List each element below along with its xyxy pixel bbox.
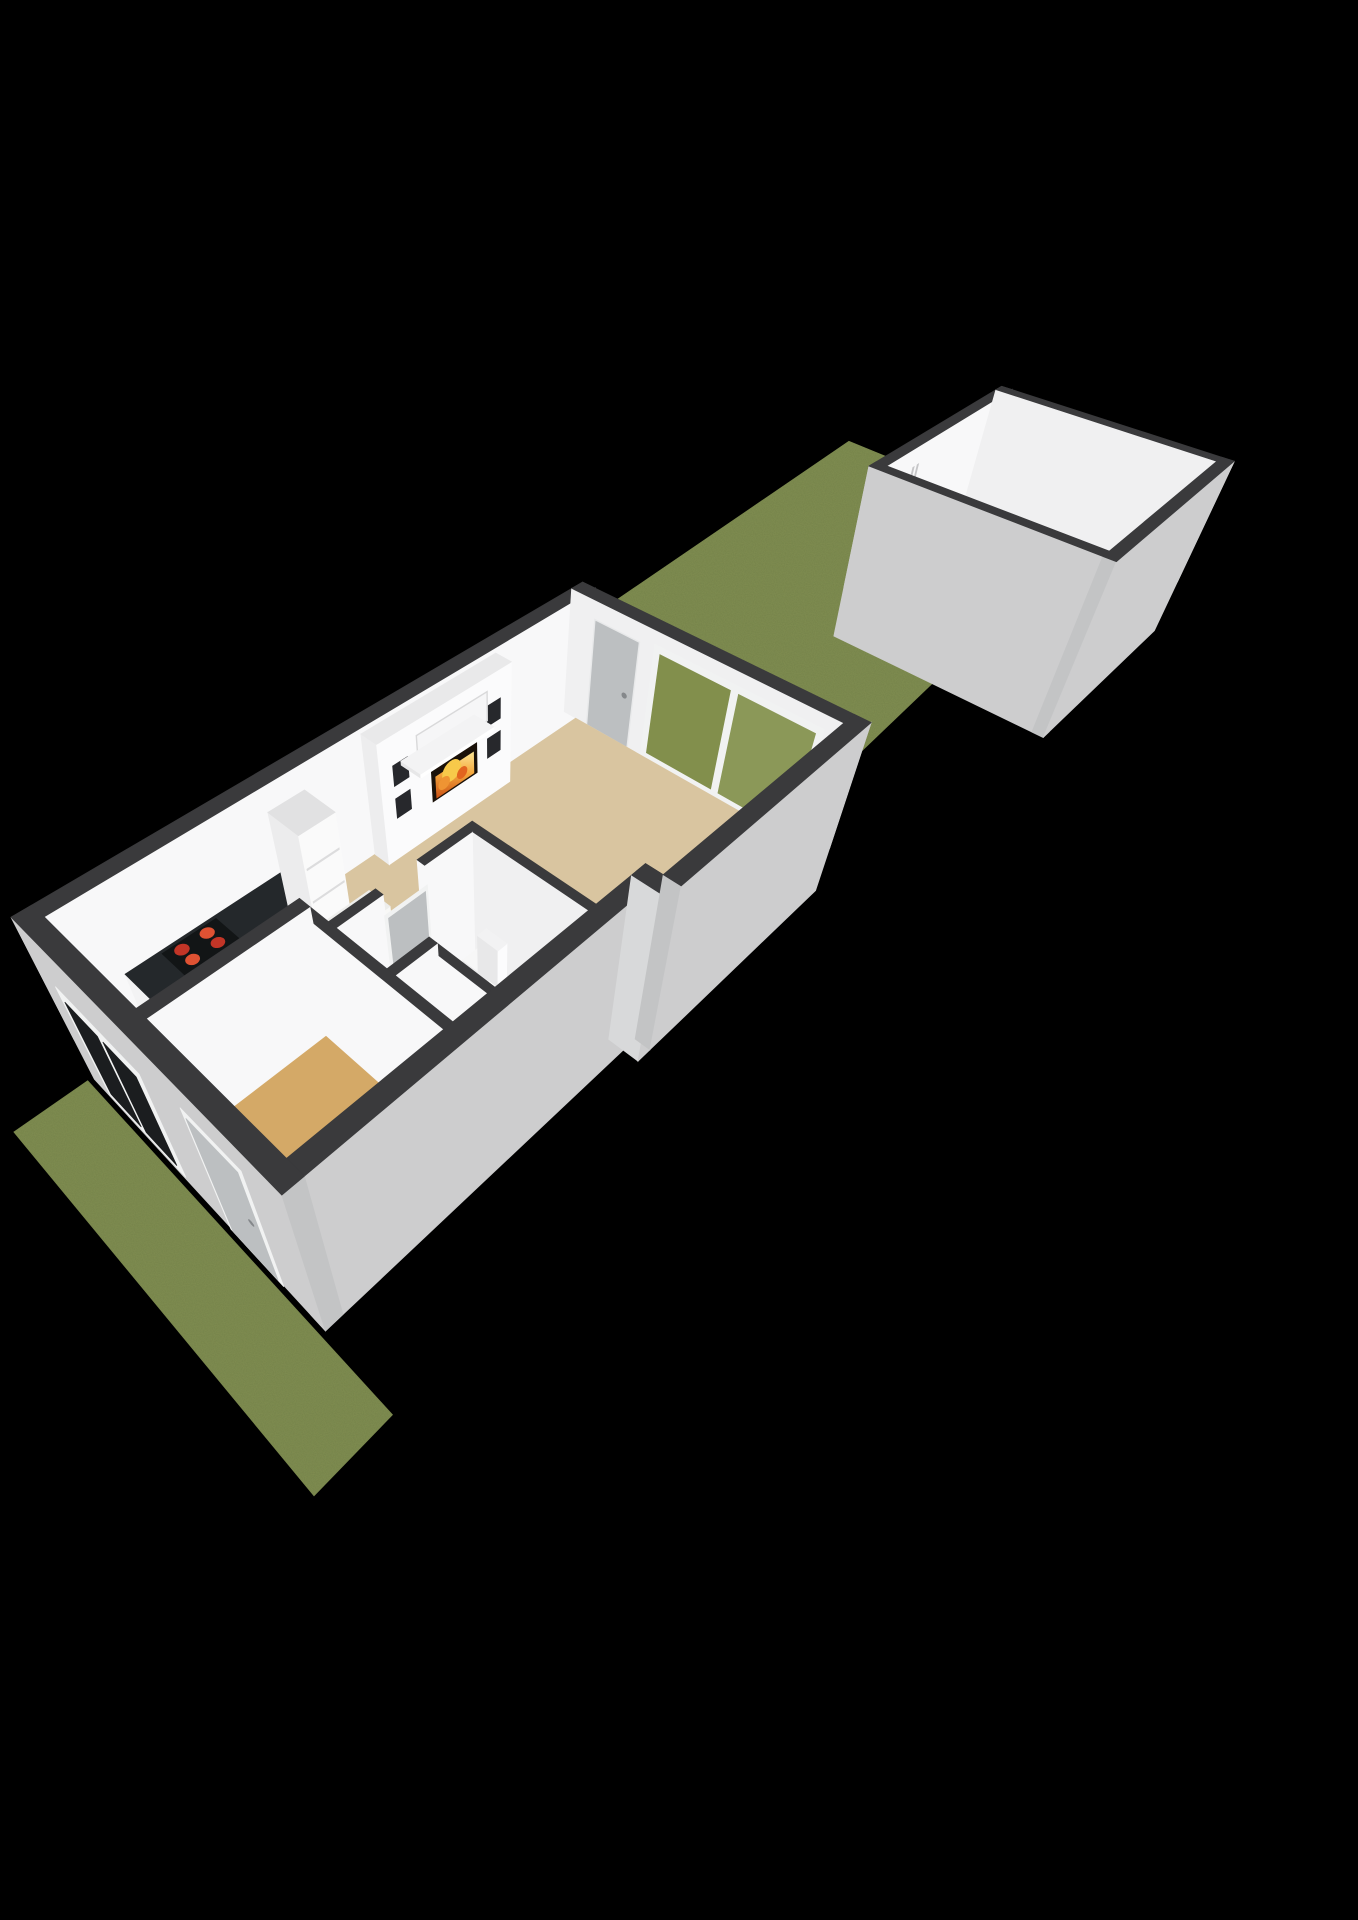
- floorplan-scene: [0, 0, 1358, 1920]
- floorplan-3d-view[interactable]: [0, 0, 1358, 1920]
